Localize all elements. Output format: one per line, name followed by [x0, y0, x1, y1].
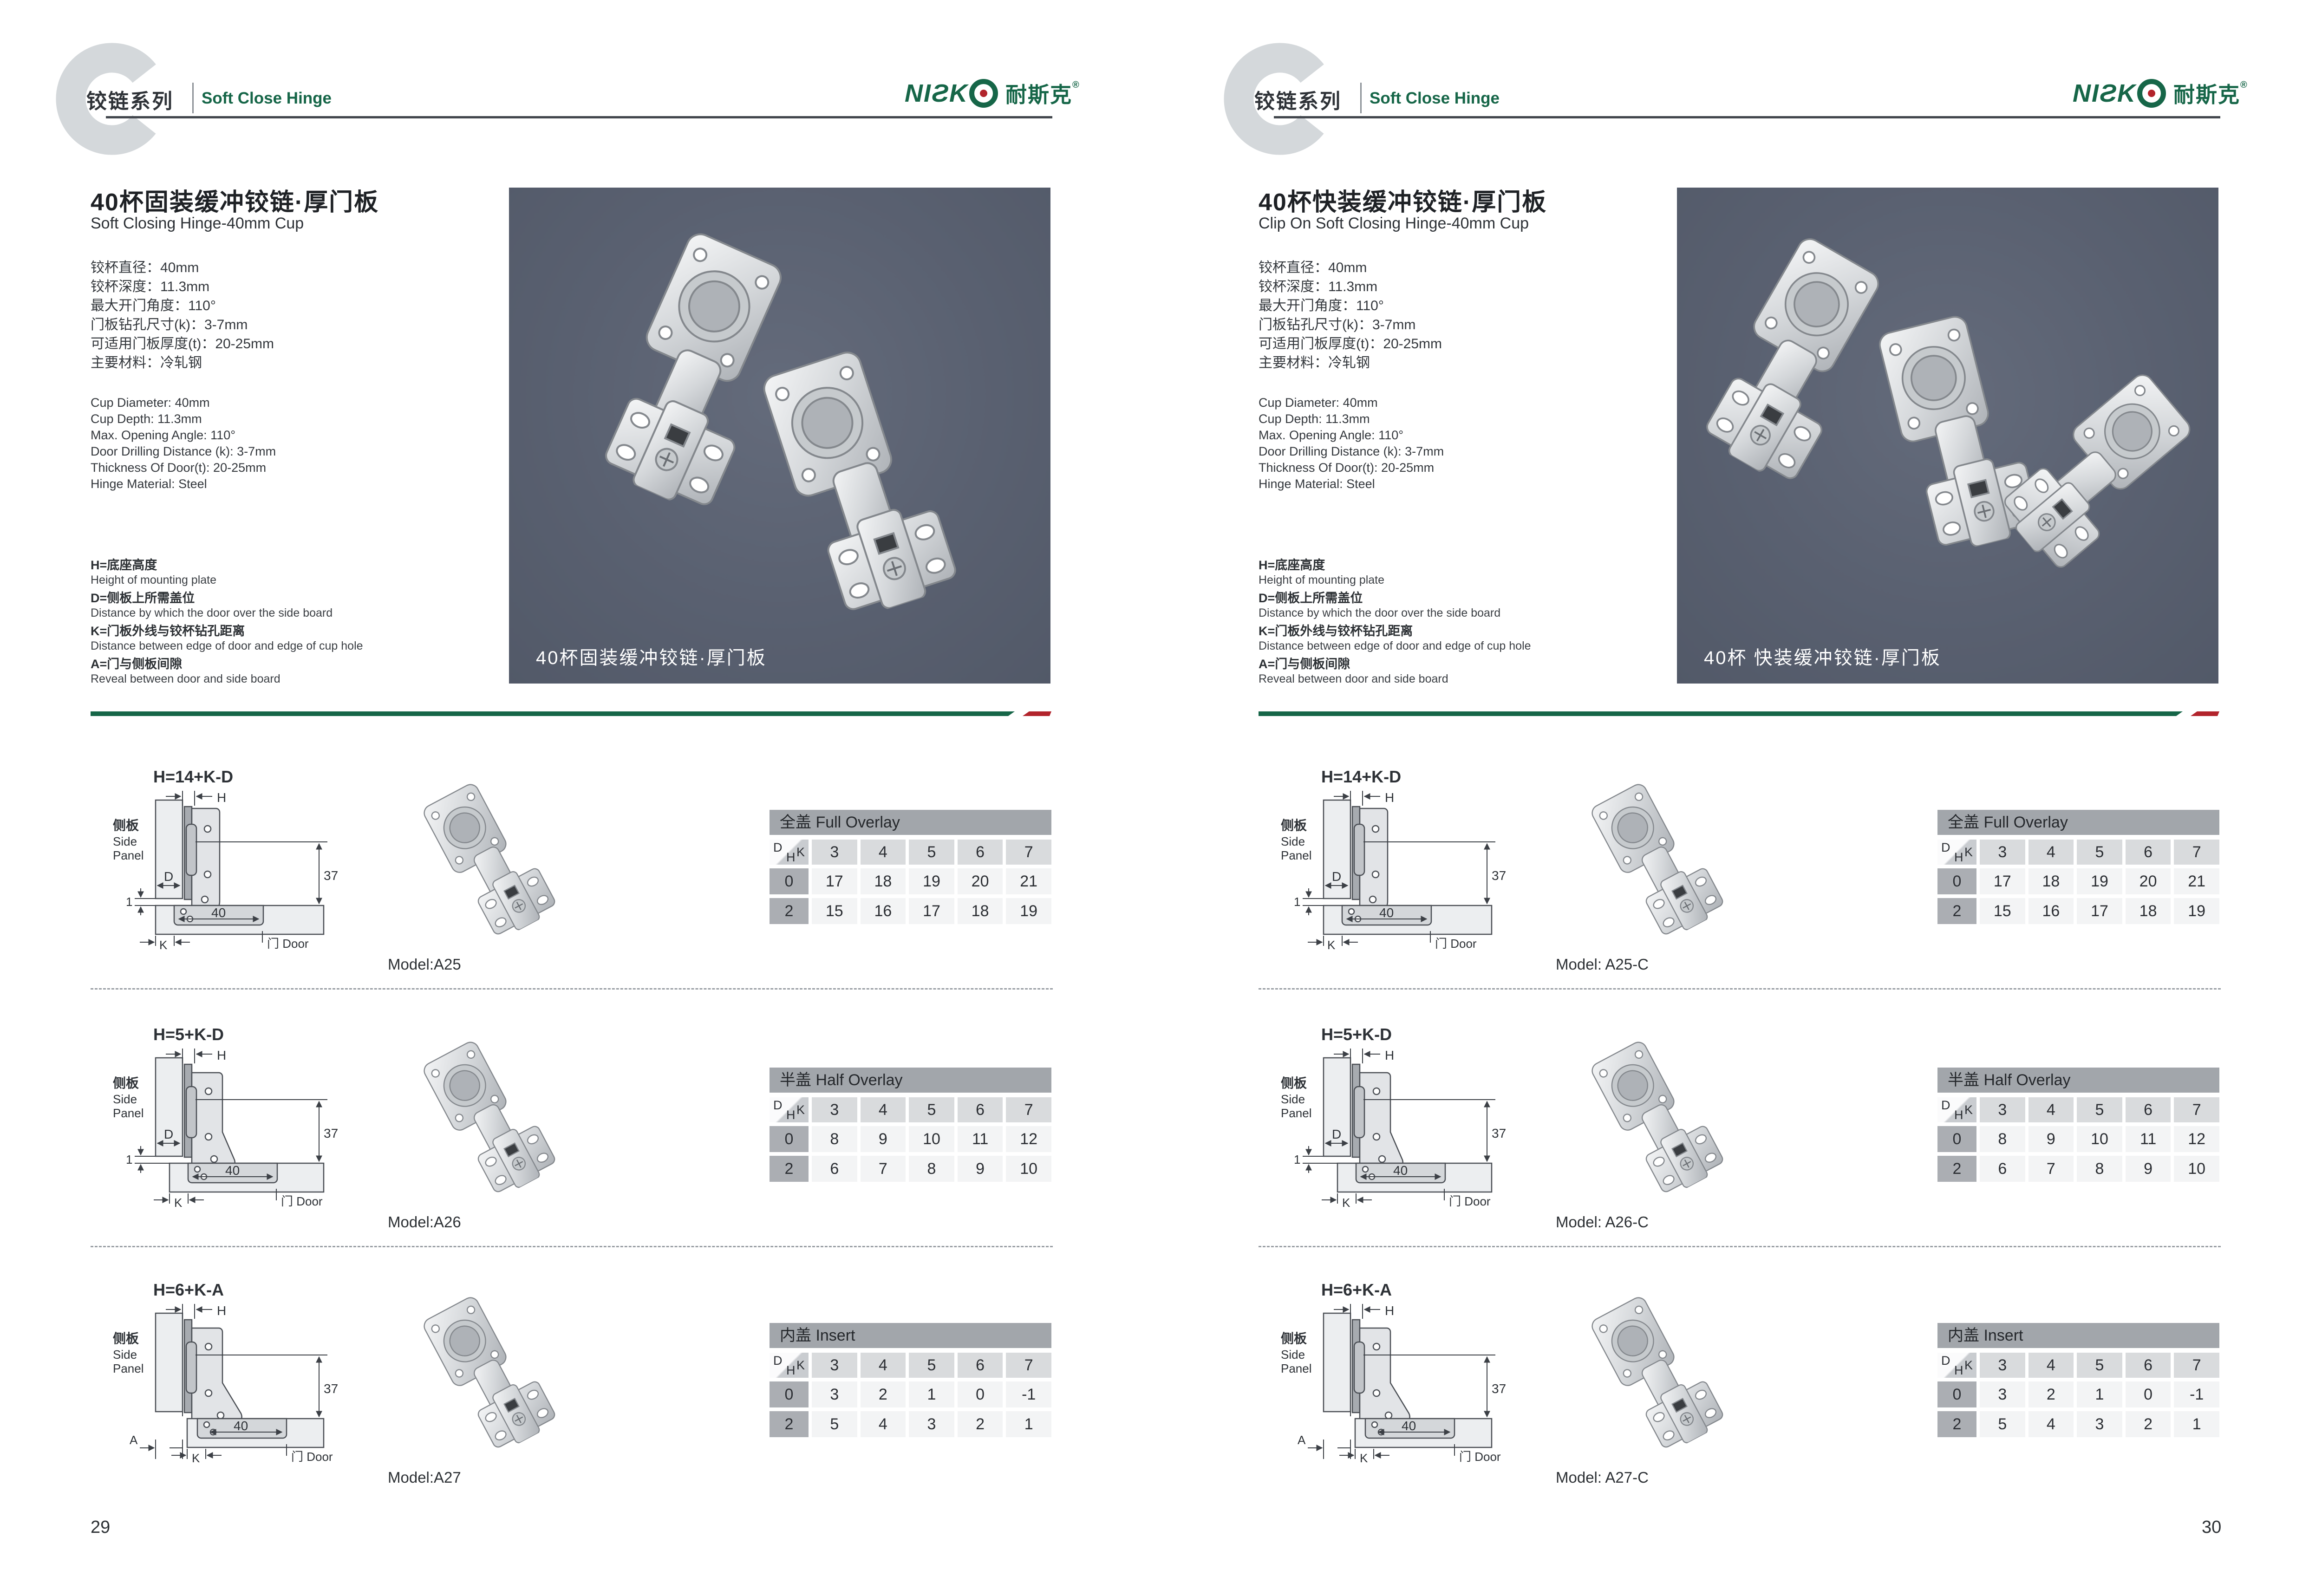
- row-hinge-photo: [1544, 1279, 1813, 1456]
- legend-cn: A=门与侧板间隙: [91, 656, 363, 672]
- spec-line: 主要材料：冷轧钢: [1259, 353, 1442, 372]
- overlay-table: 全盖 Full Overlay D K H 3 4 5 6 7 0 17 18 …: [1937, 810, 2219, 924]
- k-header: 7: [2174, 1353, 2219, 1378]
- value-cell: -1: [1006, 1381, 1051, 1407]
- legend-item: D=侧板上所需盖位 Distance by which the door ove…: [91, 590, 363, 620]
- k-header: 7: [2174, 840, 2219, 865]
- header-rule: [1274, 116, 2220, 118]
- value-cell: 17: [909, 898, 954, 924]
- legend-item: H=底座高度 Height of mounting plate: [91, 557, 363, 587]
- corner-d: D: [773, 1098, 783, 1113]
- dim-37: 37: [1492, 1381, 1506, 1396]
- value-cell: 9: [861, 1126, 906, 1152]
- legend-en: Height of mounting plate: [91, 573, 363, 587]
- value-cell: 8: [2077, 1156, 2122, 1182]
- spec-line: Door Drilling Distance (k): 3-7mm: [1259, 443, 1444, 460]
- model-row: H=14+K-D H 侧板 Side Panel D 37 1 40 K 门 D…: [0, 762, 1168, 1003]
- k-header: 5: [2077, 840, 2122, 865]
- k-header: 5: [909, 1097, 954, 1122]
- value-cell: 7: [2028, 1156, 2074, 1182]
- legend-cn: K=门板外线与铰杯钻孔距离: [91, 623, 363, 639]
- value-cell: 21: [2174, 868, 2219, 894]
- diagram-formula: H=14+K-D: [1321, 767, 1401, 786]
- spec-line: Cup Depth: 11.3mm: [1259, 411, 1444, 427]
- spec-line: Thickness Of Door(t): 20-25mm: [1259, 460, 1444, 476]
- overlay-table: 半盖 Half Overlay D K H 3 4 5 6 7 0 8 9 10…: [770, 1068, 1051, 1182]
- dim-37: 37: [324, 1381, 338, 1396]
- product-title-en: Clip On Soft Closing Hinge-40mm Cup: [1259, 215, 1529, 233]
- value-cell: 2: [2126, 1411, 2171, 1437]
- overlay-table: 半盖 Half Overlay D K H 3 4 5 6 7 0 8 9 10…: [1937, 1068, 2219, 1182]
- side-panel-en2: Panel: [1281, 1361, 1312, 1375]
- value-cell: 20: [958, 868, 1003, 894]
- registered-mark: ®: [1072, 80, 1079, 91]
- specs-cn: 铰杯直径：40mm 铰杯深度：11.3mm 最大开门角度：110° 门板钻孔尺寸…: [91, 258, 274, 372]
- side-panel-cn: 侧板: [1281, 1076, 1307, 1090]
- mounting-diagram: H=5+K-D H 侧板 Side Panel D 37 1 40 K 门 Do…: [1277, 1022, 1537, 1207]
- door-label: 门 Door: [1459, 1450, 1501, 1463]
- spec-line: Door Drilling Distance (k): 3-7mm: [91, 443, 276, 460]
- value-cell: -1: [2174, 1381, 2219, 1407]
- page-number: 30: [2202, 1518, 2221, 1537]
- brand-logo-text: NIƧK: [905, 79, 968, 108]
- spec-line: 可适用门板厚度(t)：20-25mm: [91, 334, 274, 353]
- h-row-label: 0: [770, 1381, 809, 1407]
- k-header: 6: [2126, 1097, 2171, 1122]
- value-cell: 3: [2077, 1411, 2122, 1437]
- h-row-label: 2: [1937, 1411, 1976, 1437]
- corner-k: K: [796, 1358, 805, 1373]
- dim-k: K: [1360, 1451, 1368, 1463]
- h-row-label: 0: [1937, 1126, 1976, 1152]
- dim-d: D: [164, 1127, 173, 1141]
- k-header: 3: [1980, 840, 2025, 865]
- dim-h: H: [1385, 790, 1394, 805]
- table-corner-cell: D K H: [770, 1097, 809, 1122]
- side-panel-en2: Panel: [113, 848, 144, 862]
- k-header: 6: [958, 1097, 1003, 1122]
- brand-logo: NIƧK耐斯克®: [2073, 77, 2247, 110]
- dim-k: K: [1327, 938, 1336, 950]
- dim-40: 40: [1402, 1419, 1416, 1433]
- divider-red: [2191, 711, 2219, 716]
- model-row: H=5+K-D H 侧板 Side Panel D 37 1 40 K 门 Do…: [1168, 1019, 2322, 1261]
- table-corner-cell: D K H: [1937, 1097, 1976, 1122]
- model-row: H=6+K-A H 侧板 Side Panel 37 40 K A 门 Door…: [1168, 1275, 2322, 1516]
- corner-h: H: [786, 1108, 796, 1122]
- h-row-label: 0: [1937, 1381, 1976, 1407]
- side-panel-cn: 侧板: [1281, 1331, 1307, 1346]
- divider-green: [1259, 711, 2183, 716]
- row-hinge-photo: [1544, 766, 1813, 943]
- value-cell: 8: [909, 1156, 954, 1182]
- corner-h: H: [786, 1363, 796, 1378]
- corner-k: K: [796, 1103, 805, 1117]
- side-panel-en1: Side: [1281, 1092, 1305, 1106]
- dim-40: 40: [1379, 905, 1394, 920]
- corner-h: H: [1954, 1108, 1963, 1122]
- value-cell: 21: [1006, 868, 1051, 894]
- value-cell: 1: [2174, 1411, 2219, 1437]
- h-row-label: 2: [770, 1411, 809, 1437]
- legend-en: Distance between edge of door and edge o…: [1259, 639, 1531, 653]
- diagram-formula: H=6+K-A: [153, 1280, 224, 1299]
- value-cell: 6: [812, 1156, 857, 1182]
- legend-cn: D=侧板上所需盖位: [91, 590, 363, 606]
- table-corner-cell: D K H: [1937, 840, 1976, 865]
- side-panel-en1: Side: [113, 834, 137, 848]
- k-header: 4: [861, 840, 906, 865]
- legend-item: A=门与侧板间隙 Reveal between door and side bo…: [91, 656, 363, 686]
- dimension-legend: H=底座高度 Height of mounting plate D=侧板上所需盖…: [1259, 557, 1531, 689]
- value-cell: 5: [812, 1411, 857, 1437]
- k-header: 7: [2174, 1097, 2219, 1122]
- side-panel-en1: Side: [113, 1092, 137, 1106]
- dim-1: 1: [1294, 895, 1300, 909]
- hinge-photo-art: [509, 188, 1050, 684]
- legend-cn: D=侧板上所需盖位: [1259, 590, 1531, 606]
- brand-logo-text: NIƧK: [2073, 79, 2136, 108]
- value-cell: 19: [2174, 898, 2219, 924]
- dim-40: 40: [234, 1419, 248, 1433]
- dashed-divider: [91, 1246, 1053, 1247]
- legend-cn: H=底座高度: [1259, 557, 1531, 573]
- corner-d: D: [773, 840, 783, 855]
- value-cell: 20: [2126, 868, 2171, 894]
- spec-line: 最大开门角度：110°: [91, 296, 274, 315]
- legend-en: Distance by which the door over the side…: [1259, 606, 1531, 620]
- side-panel-en2: Panel: [1281, 1106, 1312, 1120]
- series-separator: [192, 83, 194, 113]
- dimension-legend: H=底座高度 Height of mounting plate D=侧板上所需盖…: [91, 557, 363, 689]
- value-cell: 17: [812, 868, 857, 894]
- side-panel-cn: 侧板: [1281, 818, 1307, 833]
- value-cell: 11: [2126, 1126, 2171, 1152]
- brand-logo: NIƧK耐斯克®: [905, 77, 1079, 110]
- value-cell: 16: [2028, 898, 2074, 924]
- spec-line: Cup Diameter: 40mm: [1259, 395, 1444, 411]
- value-cell: 0: [958, 1381, 1003, 1407]
- mounting-diagram: H=5+K-D H 侧板 Side Panel D 37 1 40 K 门 Do…: [109, 1022, 369, 1207]
- specs-cn: 铰杯直径：40mm 铰杯深度：11.3mm 最大开门角度：110° 门板钻孔尺寸…: [1259, 258, 1442, 372]
- legend-en: Reveal between door and side board: [91, 672, 363, 686]
- k-header: 3: [812, 840, 857, 865]
- dim-a: A: [1298, 1433, 1306, 1447]
- row-hinge-photo: [1544, 1024, 1813, 1200]
- mounting-diagram: H=6+K-A H 侧板 Side Panel 37 40 K A 门 Door: [109, 1277, 369, 1463]
- corner-d: D: [1941, 1354, 1950, 1368]
- dim-37: 37: [1492, 868, 1506, 883]
- overlay-table: 全盖 Full Overlay D K H 3 4 5 6 7 0 17 18 …: [770, 810, 1051, 924]
- k-header: 4: [861, 1353, 906, 1378]
- model-label: Model:A25: [388, 956, 461, 973]
- diagram-formula: H=5+K-D: [153, 1025, 224, 1044]
- specs-en: Cup Diameter: 40mm Cup Depth: 11.3mm Max…: [1259, 395, 1444, 492]
- header-rule: [106, 116, 1052, 118]
- model-label: Model: A25-C: [1556, 956, 1649, 973]
- table-grid: D K H 3 4 5 6 7 0 17 18 19 20 21 2 15 16…: [770, 840, 1051, 924]
- value-cell: 9: [958, 1156, 1003, 1182]
- value-cell: 10: [2174, 1156, 2219, 1182]
- h-row-label: 0: [770, 868, 809, 894]
- table-title: 内盖 Insert: [1937, 1323, 2219, 1348]
- divider-green: [91, 711, 1015, 716]
- model-row: H=6+K-A H 侧板 Side Panel 37 40 K A 门 Door…: [0, 1275, 1168, 1516]
- door-label: 门 Door: [1435, 937, 1477, 950]
- hinge-photo-art: [1677, 188, 2218, 684]
- value-cell: 19: [2077, 868, 2122, 894]
- dim-d: D: [1332, 1127, 1341, 1141]
- legend-item: K=门板外线与铰杯钻孔距离 Distance between edge of d…: [91, 623, 363, 653]
- corner-k: K: [1964, 1358, 1973, 1373]
- product-title-cn: 40杯快装缓冲铰链·厚门板: [1259, 182, 1547, 217]
- corner-h: H: [1954, 1363, 1963, 1378]
- corner-d: D: [1941, 1098, 1950, 1113]
- value-cell: 4: [861, 1411, 906, 1437]
- k-header: 7: [1006, 1097, 1051, 1122]
- series-title-en: Soft Close Hinge: [1370, 89, 1500, 108]
- series-title-cn: 铰链系列: [86, 85, 174, 114]
- table-title: 内盖 Insert: [770, 1323, 1051, 1348]
- dashed-divider: [1259, 1246, 2221, 1247]
- page-number: 29: [91, 1518, 110, 1537]
- series-separator: [1360, 83, 1362, 113]
- model-row: H=14+K-D H 侧板 Side Panel D 37 1 40 K 门 D…: [1168, 762, 2322, 1003]
- table-grid: D K H 3 4 5 6 7 0 3 2 1 0 -1 2 5 4 3 2: [1937, 1353, 2219, 1437]
- legend-item: K=门板外线与铰杯钻孔距离 Distance between edge of d…: [1259, 623, 1531, 653]
- table-grid: D K H 3 4 5 6 7 0 17 18 19 20 21 2 15 16…: [1937, 840, 2219, 924]
- model-label: Model:A26: [388, 1213, 461, 1231]
- value-cell: 19: [909, 868, 954, 894]
- value-cell: 12: [2174, 1126, 2219, 1152]
- registered-mark: ®: [2240, 80, 2247, 91]
- legend-en: Distance by which the door over the side…: [91, 606, 363, 620]
- side-panel-en1: Side: [1281, 1348, 1305, 1361]
- dim-h: H: [217, 1303, 226, 1318]
- spec-line: Hinge Material: Steel: [91, 476, 276, 492]
- dim-d: D: [1332, 869, 1341, 884]
- corner-h: H: [786, 850, 796, 865]
- h-row-label: 0: [1937, 868, 1976, 894]
- k-header: 6: [958, 840, 1003, 865]
- diagram-formula: H=14+K-D: [153, 767, 233, 786]
- value-cell: 1: [909, 1381, 954, 1407]
- corner-k: K: [1964, 1103, 1973, 1117]
- overlay-table: 内盖 Insert D K H 3 4 5 6 7 0 3 2 1 0 -1 2: [1937, 1323, 2219, 1437]
- side-panel-en1: Side: [113, 1348, 137, 1361]
- brand-logo-cn: 耐斯克: [1005, 78, 1072, 109]
- dashed-divider: [91, 988, 1053, 990]
- spec-line: Max. Opening Angle: 110°: [1259, 427, 1444, 443]
- table-corner-cell: D K H: [770, 840, 809, 865]
- table-title: 半盖 Half Overlay: [1937, 1068, 2219, 1093]
- value-cell: 10: [2077, 1126, 2122, 1152]
- table-grid: D K H 3 4 5 6 7 0 8 9 10 11 12 2 6 7 8 9: [1937, 1097, 2219, 1182]
- spec-line: 主要材料：冷轧钢: [91, 353, 274, 372]
- mounting-diagram: H=14+K-D H 侧板 Side Panel D 37 1 40 K 门 D…: [109, 764, 369, 950]
- door-label: 门 Door: [1449, 1194, 1491, 1207]
- corner-k: K: [796, 845, 805, 860]
- h-row-label: 0: [770, 1126, 809, 1152]
- dim-k: K: [192, 1451, 200, 1463]
- k-header: 3: [1980, 1353, 2025, 1378]
- table-grid: D K H 3 4 5 6 7 0 8 9 10 11 12 2 6 7 8 9: [770, 1097, 1051, 1182]
- legend-en: Height of mounting plate: [1259, 573, 1531, 587]
- k-header: 3: [812, 1353, 857, 1378]
- brand-logo-o-icon: [2137, 79, 2166, 108]
- k-header: 6: [958, 1353, 1003, 1378]
- diagram-formula: H=6+K-A: [1321, 1280, 1392, 1299]
- value-cell: 8: [1980, 1126, 2025, 1152]
- value-cell: 2: [958, 1411, 1003, 1437]
- value-cell: 18: [2028, 868, 2074, 894]
- overlay-table: 内盖 Insert D K H 3 4 5 6 7 0 3 2 1 0 -1 2: [770, 1323, 1051, 1437]
- product-photo: 40杯 快装缓冲铰链·厚门板: [1677, 188, 2218, 684]
- photo-caption: 40杯 快装缓冲铰链·厚门板: [1704, 643, 1941, 670]
- value-cell: 7: [861, 1156, 906, 1182]
- k-header: 4: [2028, 840, 2074, 865]
- legend-en: Distance between edge of door and edge o…: [91, 639, 363, 653]
- mounting-diagram: H=6+K-A H 侧板 Side Panel 37 40 K A 门 Door: [1277, 1277, 1537, 1463]
- dashed-divider: [1259, 988, 2221, 990]
- k-header: 5: [909, 1353, 954, 1378]
- value-cell: 19: [1006, 898, 1051, 924]
- table-corner-cell: D K H: [1937, 1353, 1976, 1378]
- spec-line: 铰杯深度：11.3mm: [1259, 277, 1442, 296]
- dim-40: 40: [211, 905, 226, 920]
- dim-a: A: [130, 1433, 138, 1447]
- k-header: 6: [2126, 840, 2171, 865]
- h-row-label: 2: [770, 1156, 809, 1182]
- spec-line: 可适用门板厚度(t)：20-25mm: [1259, 334, 1442, 353]
- mounting-diagram: H=14+K-D H 侧板 Side Panel D 37 1 40 K 门 D…: [1277, 764, 1537, 950]
- value-cell: 4: [2028, 1411, 2074, 1437]
- side-panel-en2: Panel: [113, 1106, 144, 1120]
- k-header: 3: [1980, 1097, 2025, 1122]
- spec-line: 门板钻孔尺寸(k)：3-7mm: [91, 315, 274, 334]
- catalog-page-left: 铰链系列 Soft Close Hinge NIƧK耐斯克® 40杯固装缓冲铰链…: [0, 0, 1168, 1596]
- side-panel-en2: Panel: [113, 1361, 144, 1375]
- value-cell: 3: [909, 1411, 954, 1437]
- product-title-cn: 40杯固装缓冲铰链·厚门板: [91, 182, 379, 217]
- k-header: 7: [1006, 1353, 1051, 1378]
- brand-logo-cn: 耐斯克: [2173, 78, 2240, 109]
- corner-d: D: [1941, 840, 1950, 855]
- value-cell: 18: [2126, 898, 2171, 924]
- catalog-page-right: 铰链系列 Soft Close Hinge NIƧK耐斯克® 40杯快装缓冲铰链…: [1168, 0, 2322, 1596]
- k-header: 5: [2077, 1353, 2122, 1378]
- model-label: Model: A26-C: [1556, 1213, 1649, 1231]
- dim-1: 1: [126, 1153, 132, 1166]
- dim-40: 40: [225, 1163, 240, 1178]
- value-cell: 11: [958, 1126, 1003, 1152]
- value-cell: 15: [1980, 898, 2025, 924]
- value-cell: 17: [1980, 868, 2025, 894]
- value-cell: 1: [1006, 1411, 1051, 1437]
- dim-h: H: [217, 1048, 226, 1062]
- value-cell: 1: [2077, 1381, 2122, 1407]
- model-row: H=5+K-D H 侧板 Side Panel D 37 1 40 K 门 Do…: [0, 1019, 1168, 1261]
- spec-line: Cup Diameter: 40mm: [91, 395, 276, 411]
- k-header: 4: [2028, 1097, 2074, 1122]
- legend-cn: H=底座高度: [91, 557, 363, 573]
- h-row-label: 2: [1937, 1156, 1976, 1182]
- k-header: 4: [2028, 1353, 2074, 1378]
- value-cell: 2: [2028, 1381, 2074, 1407]
- value-cell: 5: [1980, 1411, 2025, 1437]
- spec-line: 铰杯深度：11.3mm: [91, 277, 274, 296]
- table-title: 全盖 Full Overlay: [770, 810, 1051, 835]
- k-header: 4: [861, 1097, 906, 1122]
- dim-37: 37: [324, 868, 338, 883]
- value-cell: 2: [861, 1381, 906, 1407]
- h-row-label: 2: [1937, 898, 1976, 924]
- value-cell: 0: [2126, 1381, 2171, 1407]
- table-grid: D K H 3 4 5 6 7 0 3 2 1 0 -1 2 5 4 3 2: [770, 1353, 1051, 1437]
- table-title: 半盖 Half Overlay: [770, 1068, 1051, 1093]
- model-label: Model: A27-C: [1556, 1469, 1649, 1486]
- dim-h: H: [1385, 1048, 1394, 1062]
- legend-item: D=侧板上所需盖位 Distance by which the door ove…: [1259, 590, 1531, 620]
- row-hinge-photo: [376, 1279, 646, 1456]
- spec-line: Max. Opening Angle: 110°: [91, 427, 276, 443]
- row-hinge-photo: [376, 766, 646, 943]
- side-panel-cn: 侧板: [113, 818, 139, 833]
- spec-line: Hinge Material: Steel: [1259, 476, 1444, 492]
- table-corner-cell: D K H: [770, 1353, 809, 1378]
- value-cell: 10: [909, 1126, 954, 1152]
- value-cell: 12: [1006, 1126, 1051, 1152]
- dim-d: D: [164, 869, 173, 884]
- dim-k: K: [159, 938, 168, 950]
- value-cell: 8: [812, 1126, 857, 1152]
- product-photo: 40杯固装缓冲铰链·厚门板: [509, 188, 1050, 684]
- series-title-en: Soft Close Hinge: [202, 89, 332, 108]
- value-cell: 18: [958, 898, 1003, 924]
- dim-h: H: [217, 790, 226, 805]
- value-cell: 9: [2126, 1156, 2171, 1182]
- value-cell: 3: [812, 1381, 857, 1407]
- dim-40: 40: [1393, 1163, 1408, 1178]
- door-label: 门 Door: [281, 1194, 323, 1207]
- table-title: 全盖 Full Overlay: [1937, 810, 2219, 835]
- value-cell: 15: [812, 898, 857, 924]
- spec-line: 门板钻孔尺寸(k)：3-7mm: [1259, 315, 1442, 334]
- corner-d: D: [773, 1354, 783, 1368]
- dim-1: 1: [126, 895, 132, 909]
- value-cell: 17: [2077, 898, 2122, 924]
- side-panel-en2: Panel: [1281, 848, 1312, 862]
- dim-37: 37: [1492, 1126, 1506, 1140]
- spec-line: Thickness Of Door(t): 20-25mm: [91, 460, 276, 476]
- legend-cn: K=门板外线与铰杯钻孔距离: [1259, 623, 1531, 639]
- door-label: 门 Door: [291, 1450, 333, 1463]
- model-label: Model:A27: [388, 1469, 461, 1486]
- spec-line: Cup Depth: 11.3mm: [91, 411, 276, 427]
- side-panel-cn: 侧板: [113, 1331, 139, 1346]
- corner-k: K: [1964, 845, 1973, 860]
- legend-en: Reveal between door and side board: [1259, 672, 1531, 686]
- side-panel-en1: Side: [1281, 834, 1305, 848]
- row-hinge-photo: [376, 1024, 646, 1200]
- door-label: 门 Door: [267, 937, 309, 950]
- value-cell: 16: [861, 898, 906, 924]
- value-cell: 6: [1980, 1156, 2025, 1182]
- legend-item: A=门与侧板间隙 Reveal between door and side bo…: [1259, 656, 1531, 686]
- series-title-cn: 铰链系列: [1254, 85, 1342, 114]
- brand-logo-o-icon: [969, 79, 998, 108]
- divider-red: [1023, 711, 1051, 716]
